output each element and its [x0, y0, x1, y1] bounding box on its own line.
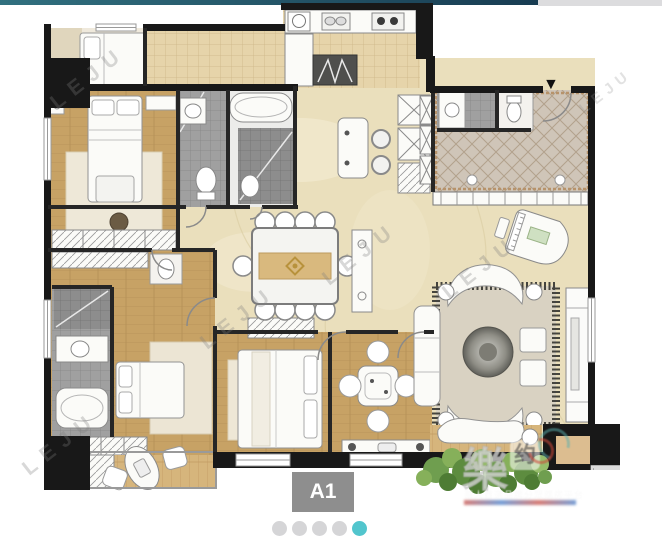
carousel-dot[interactable]	[272, 521, 287, 536]
room-bedroom-upper-left	[48, 90, 178, 252]
room-foyer	[420, 90, 591, 205]
carousel-dots	[272, 521, 367, 536]
carousel-dot[interactable]	[332, 521, 347, 536]
floor-plan	[0, 0, 662, 544]
room-bath-a	[178, 90, 228, 207]
entry-arrow-icon: ▼	[543, 76, 559, 94]
carousel-dot[interactable]	[312, 521, 327, 536]
carousel-dot-active[interactable]	[352, 521, 367, 536]
room-bath-b	[228, 90, 295, 207]
unit-label: A1	[292, 472, 354, 512]
screenshot-stage: ▼ LEJU LEJU LEJU LEJU LEJU LEJU 樂 约 居 華人…	[0, 0, 662, 544]
room-master-suite	[48, 252, 215, 455]
room-bedroom-c	[215, 318, 330, 454]
carousel-dot[interactable]	[292, 521, 307, 536]
